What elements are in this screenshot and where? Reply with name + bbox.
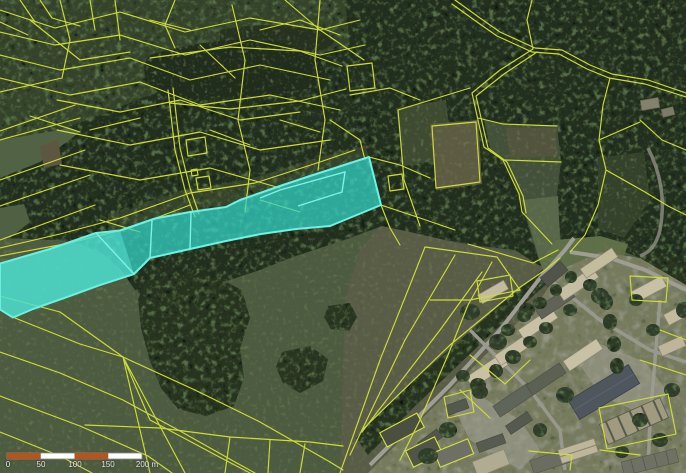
svg-text:50: 50 [37,460,46,469]
svg-text:200 m: 200 m [136,460,159,469]
svg-text:150: 150 [101,460,115,469]
svg-text:100: 100 [68,460,82,469]
svg-text:0: 0 [6,460,11,469]
